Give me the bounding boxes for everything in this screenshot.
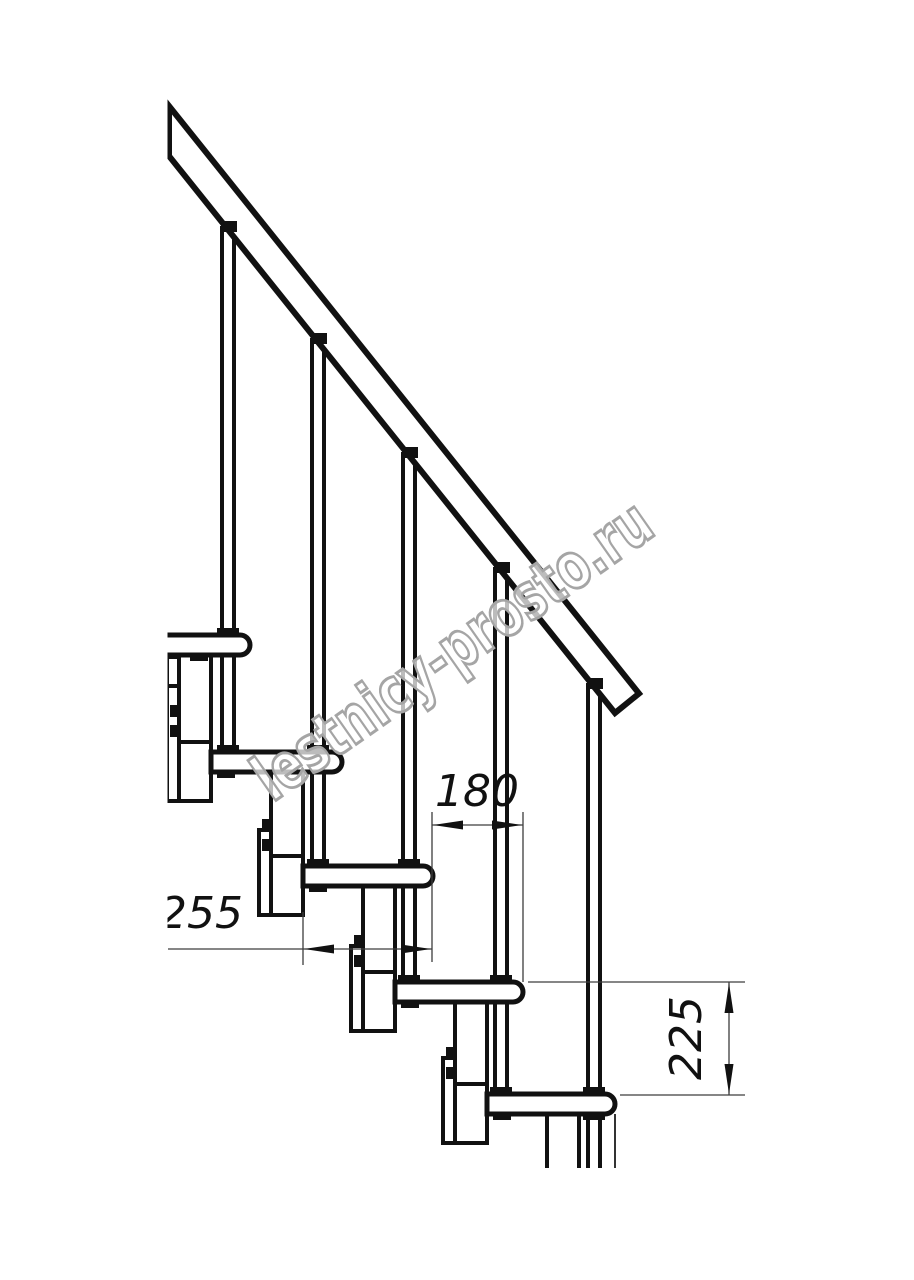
stringer-module-3 [351,886,395,1031]
baluster-1-base-plate [217,628,239,635]
module-1-column [179,655,211,801]
baluster-3-base-plate [398,859,420,866]
dim-255-arrow-left [304,945,334,954]
tread-4 [395,982,523,1002]
nose-strut-3 [403,886,415,982]
module-2-bolt-upper [262,819,273,831]
tread-3-underside-bolt [309,885,327,892]
module-3-bolt-lower [354,955,365,967]
dimension-riser-height: 225 [528,982,745,1095]
baluster-5 [588,685,600,1094]
dimension-step-run: 180 [432,766,523,982]
module-2-bolt-lower [262,839,273,851]
drawing-canvas: 180 255 225 lestnicy-prosto.ru [0,0,914,1280]
tread-3 [303,866,433,886]
module-4-column [455,1002,487,1143]
tread-1-underside-bolt [190,654,208,661]
dim-label-225: 225 [661,996,712,1080]
tread-5-underside-bolt [493,1113,511,1120]
staircase-drawing: 180 255 225 lestnicy-prosto.ru [0,0,914,1280]
dim-225-arrow-down [725,1064,734,1094]
tread-1 [160,635,250,655]
dim-225-arrow-up [725,983,734,1013]
module-4-bolt-upper [446,1047,457,1059]
baluster-3-cap [402,447,418,458]
baluster-1 [222,228,234,635]
module-3-bolt-upper [354,935,365,947]
tread-4-underside-bolt [401,1001,419,1008]
module-1-bolt-upper [170,705,181,717]
baluster-2 [312,340,324,752]
dim-180-arrow-left [433,821,463,830]
stringer-module-5 [547,1114,579,1168]
tread-5 [487,1094,615,1114]
baluster-5-cap [587,678,603,689]
nose-strut-1 [222,655,234,752]
module-1-bolt-lower [170,725,181,737]
tread-2-underside-bolt [217,771,235,778]
baluster-2-cap [311,333,327,344]
dim-label-255: 255 [159,888,243,939]
dim-label-180: 180 [435,766,519,817]
baluster-5-base-plate [583,1087,605,1094]
module-4-bolt-lower [446,1067,457,1079]
module-3-column [363,886,395,1031]
baluster-4-base-plate [490,975,512,982]
baluster-1-cap [221,221,237,232]
stringer-module-1 [167,655,211,801]
stringer-module-4 [443,1002,487,1143]
nose-strut-4 [495,1002,507,1094]
